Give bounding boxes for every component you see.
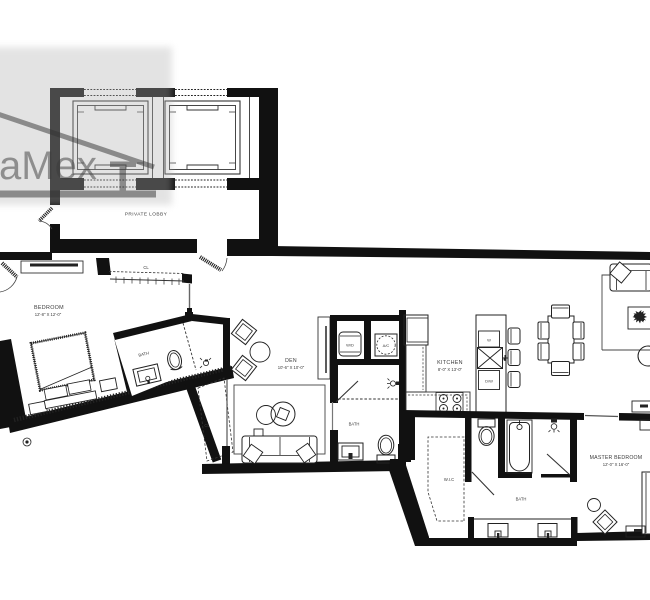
svg-text:aMex: aMex [0, 144, 97, 188]
svg-text:12'-8" X 12'-0": 12'-8" X 12'-0" [35, 312, 62, 317]
svg-text:PRIVATE LOBBY: PRIVATE LOBBY [125, 212, 168, 218]
svg-text:BEDROOM: BEDROOM [34, 305, 64, 311]
svg-text:A/C: A/C [383, 343, 390, 348]
svg-text:BATH: BATH [516, 497, 527, 502]
svg-text:KITCHEN: KITCHEN [437, 360, 463, 366]
svg-text:DEN: DEN [285, 358, 297, 364]
svg-text:8'-0" X 13'-0": 8'-0" X 13'-0" [438, 367, 463, 372]
svg-text:W/D: W/D [346, 343, 354, 348]
svg-text:CL: CL [204, 423, 210, 428]
svg-text:BATH: BATH [349, 422, 360, 427]
svg-text:D/W: D/W [485, 379, 493, 384]
svg-text:CL: CL [143, 265, 149, 270]
svg-text:10'-6" X 10'-0": 10'-6" X 10'-0" [278, 365, 305, 370]
svg-text:MASTER BEDROOM: MASTER BEDROOM [590, 455, 643, 461]
svg-text:12'-0" X 16'-0": 12'-0" X 16'-0" [603, 462, 630, 467]
svg-text:W: W [487, 338, 491, 343]
svg-text:W.I.C: W.I.C [444, 477, 454, 482]
